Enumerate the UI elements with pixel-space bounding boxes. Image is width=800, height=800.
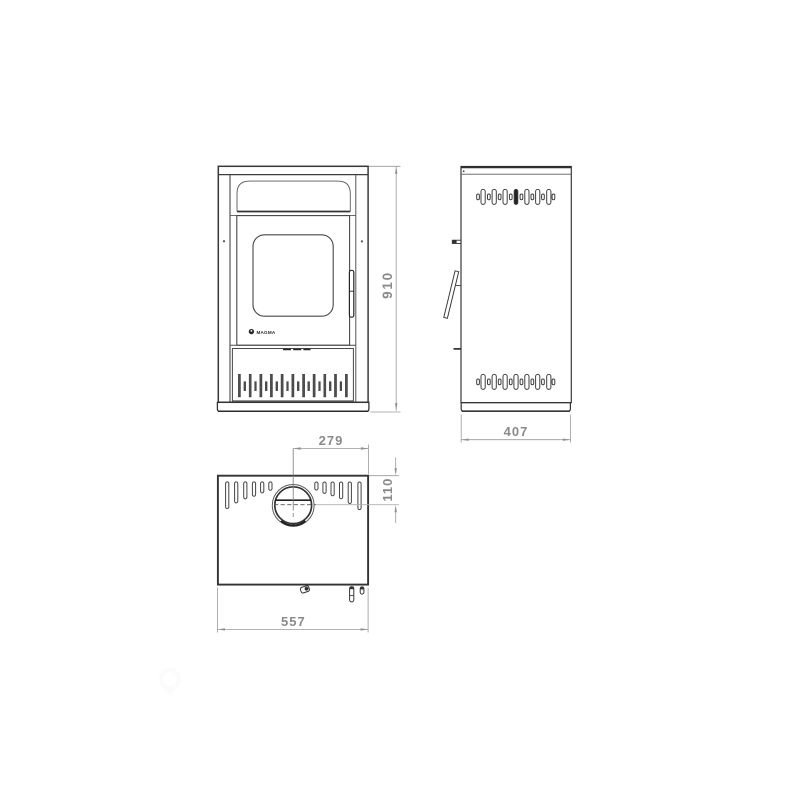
svg-text:MAGMA: MAGMA bbox=[257, 330, 276, 335]
svg-text:110: 110 bbox=[380, 478, 395, 502]
svg-text:557: 557 bbox=[281, 614, 306, 629]
svg-text:279: 279 bbox=[319, 433, 344, 448]
svg-text:910: 910 bbox=[380, 271, 395, 299]
svg-text:407: 407 bbox=[504, 424, 529, 439]
